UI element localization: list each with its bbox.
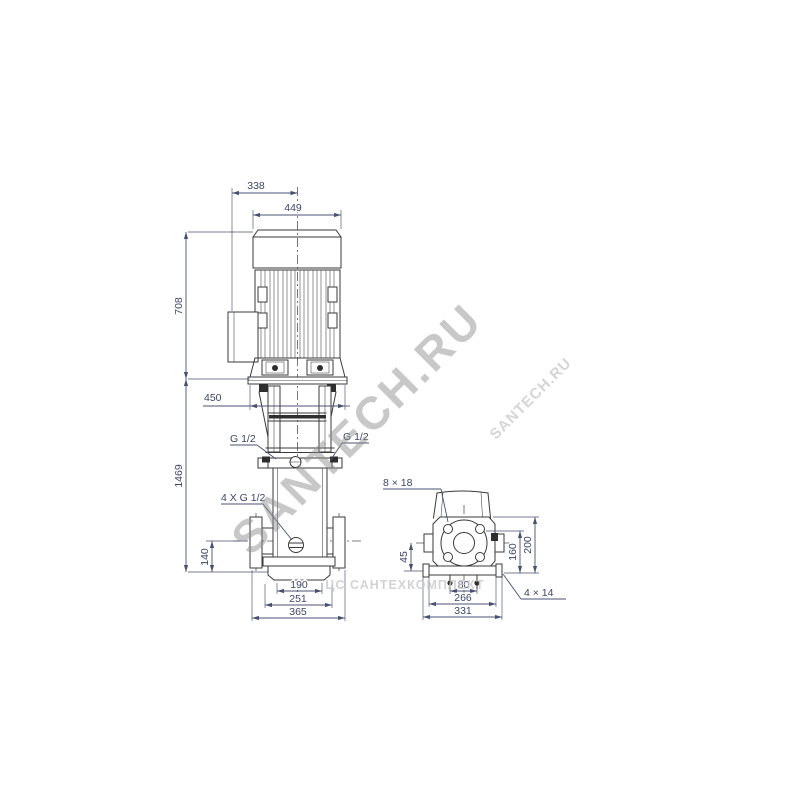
- side-flange: [424, 517, 504, 568]
- dim-266: 266: [454, 592, 472, 604]
- dim-338: 338: [247, 180, 265, 192]
- dim-160: 160: [507, 543, 519, 561]
- pump-base: [263, 557, 335, 580]
- drain-plug: [289, 538, 304, 553]
- label-holes-4x14: 4 × 14: [524, 587, 554, 599]
- dim-365: 365: [289, 606, 307, 618]
- dim-708: 708: [173, 297, 185, 315]
- dim-1469: 1469: [173, 464, 185, 488]
- dim-200: 200: [522, 536, 534, 554]
- dim-45: 45: [398, 551, 410, 563]
- label-g-half-left: G 1/2: [230, 433, 256, 445]
- dim-190: 190: [290, 579, 308, 591]
- motor: [228, 230, 347, 392]
- terminal-box: [228, 312, 258, 362]
- dim-331: 331: [454, 605, 472, 617]
- label-slot-8x18: 8 × 18: [383, 477, 413, 489]
- drawing-page: 338 449 708 1469 450 140 190 251: [0, 0, 800, 800]
- watermark-band: ЦС САНТЕХКОМПЛЕКТ: [325, 578, 484, 592]
- dim-140: 140: [199, 548, 211, 566]
- dim-251: 251: [289, 593, 307, 605]
- dim-449: 449: [284, 202, 302, 214]
- dim-450: 450: [204, 392, 222, 404]
- watermark-small: SANTECH.RU: [487, 355, 576, 444]
- pump-drawing: 338 449 708 1469 450 140 190 251: [0, 0, 800, 800]
